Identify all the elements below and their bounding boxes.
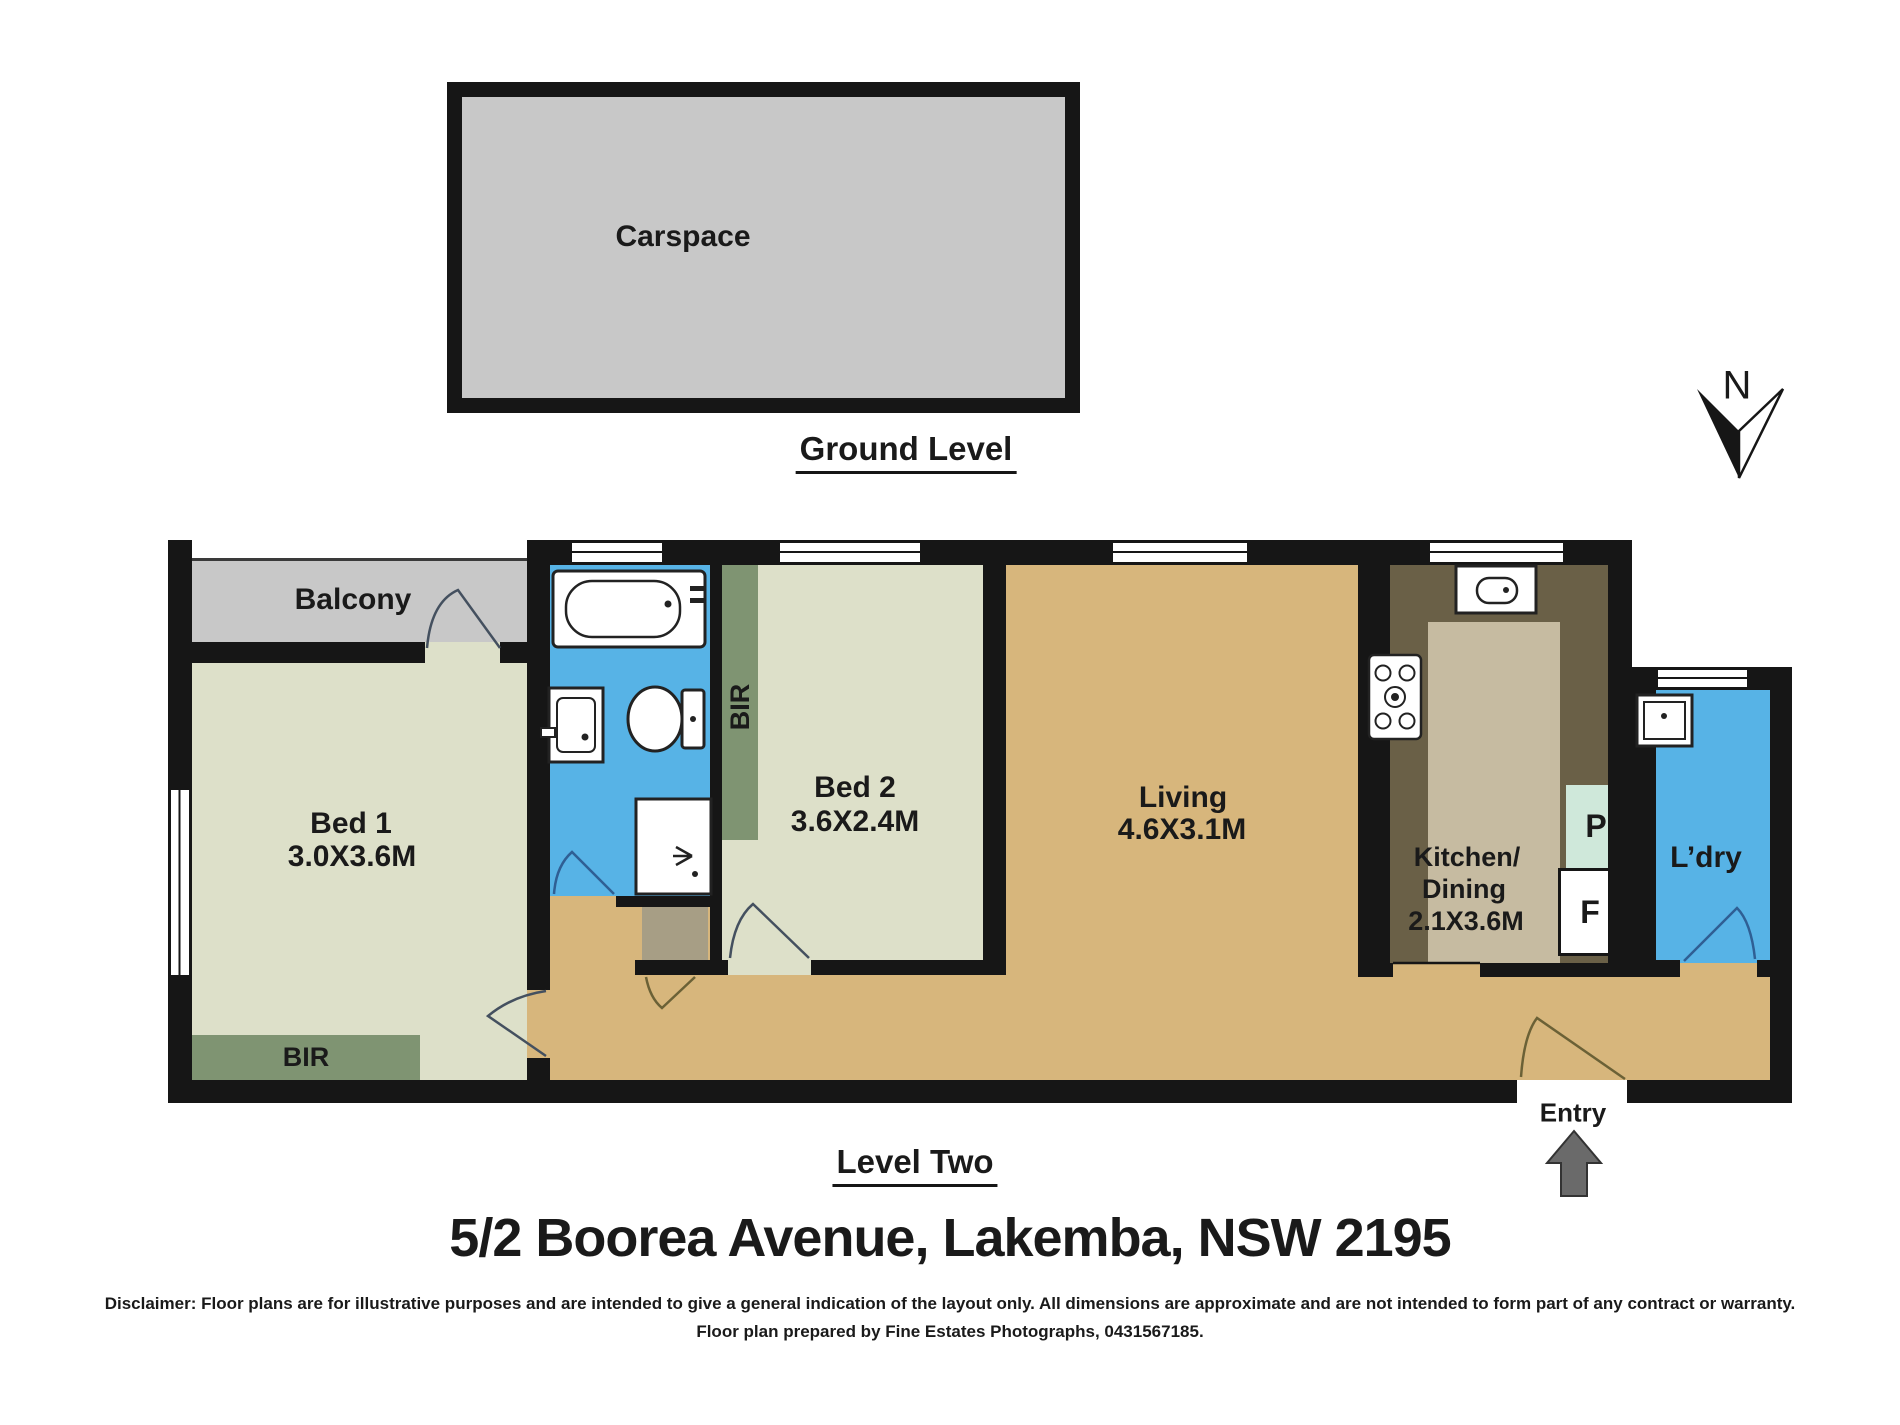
wall-bottom-left	[168, 1080, 1517, 1103]
bed1-door-gap-floor	[527, 990, 550, 1058]
wall-bathroom-bed2	[710, 540, 722, 975]
wall-balcony-bed1-a	[192, 642, 425, 663]
balcony-door-gap-floor	[425, 642, 500, 663]
disclaimer-line2: Floor plan prepared by Fine Estates Phot…	[0, 1322, 1900, 1342]
bed1-window	[168, 790, 192, 975]
floor-plan-page: Carspace Ground Level	[0, 0, 1900, 1425]
wall-kitchen-right	[1608, 540, 1632, 977]
bed1-label: Bed 1	[310, 807, 392, 841]
ground-level-caption: Ground Level	[796, 430, 1017, 474]
living-dims: 4.6X3.1M	[1118, 813, 1246, 847]
carspace-label: Carspace	[615, 220, 750, 254]
wall-living-kitchen	[1358, 540, 1390, 963]
bed1-dims: 3.0X3.6M	[288, 840, 416, 874]
wall-bottom-right	[1627, 1080, 1792, 1103]
kitchen-window	[1430, 540, 1563, 565]
fridge-label: F	[1580, 895, 1600, 931]
laundry-floor	[1656, 690, 1770, 963]
bed2-bir-label: BIR	[725, 684, 755, 731]
wall-balcony-bed1-b	[500, 642, 527, 663]
pantry-label: P	[1585, 809, 1606, 845]
kitchen-label-line2: Dining	[1422, 874, 1506, 904]
wall-cupboard-bottom	[635, 960, 728, 975]
laundry-label: L’dry	[1670, 841, 1742, 875]
bed1-bir-label: BIR	[283, 1042, 330, 1072]
wall-kitchen-bottom-a	[1358, 963, 1393, 977]
wall-laundry-bottom-b	[1757, 960, 1792, 977]
bathroom-window	[572, 540, 662, 565]
carspace-box	[447, 82, 1080, 413]
balcony-label: Balcony	[295, 583, 412, 617]
wall-bathroom-bottom	[616, 896, 712, 907]
address-title: 5/2 Boorea Avenue, Lakemba, NSW 2195	[449, 1208, 1450, 1268]
bathroom-floor	[550, 565, 712, 896]
level-two-caption: Level Two	[832, 1143, 997, 1187]
bed2-label: Bed 2	[814, 771, 896, 805]
hallway-right	[1358, 960, 1770, 1080]
kitchen-label-line1: Kitchen/	[1414, 842, 1521, 872]
wall-right-outer	[1770, 667, 1792, 1103]
wall-bed2-living	[983, 540, 1006, 975]
wall-bed1-right	[527, 540, 550, 990]
wall-bed2-bottom	[811, 960, 995, 975]
entry-arrow-icon	[1547, 1131, 1601, 1196]
bed2-floor	[722, 565, 983, 975]
living-label: Living	[1139, 781, 1227, 815]
kitchen-dims: 2.1X3.6M	[1408, 906, 1524, 936]
entry-label: Entry	[1540, 1098, 1606, 1127]
bed2-dims: 3.6X2.4M	[791, 805, 919, 839]
wall-bed1-right-stub	[527, 1058, 550, 1080]
hall-cupboard	[642, 907, 708, 963]
living-window	[1113, 540, 1247, 565]
bed2-window	[780, 540, 920, 565]
north-label: N	[1723, 364, 1752, 409]
wall-laundry-left	[1632, 690, 1656, 977]
disclaimer-line1: Disclaimer: Floor plans are for illustra…	[0, 1294, 1900, 1314]
laundry-window	[1658, 667, 1747, 690]
wall-kitchen-bottom-b	[1480, 963, 1632, 977]
wall-laundry-bottom-a	[1632, 960, 1680, 977]
